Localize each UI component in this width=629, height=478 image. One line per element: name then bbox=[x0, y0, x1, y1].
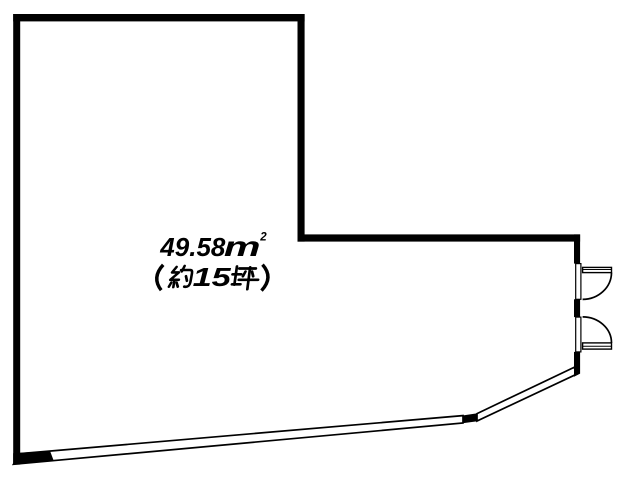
svg-text:15: 15 bbox=[193, 263, 232, 292]
svg-text:2: 2 bbox=[259, 232, 267, 244]
svg-text:49.58: 49.58 bbox=[159, 232, 226, 262]
svg-text:m: m bbox=[224, 231, 261, 262]
